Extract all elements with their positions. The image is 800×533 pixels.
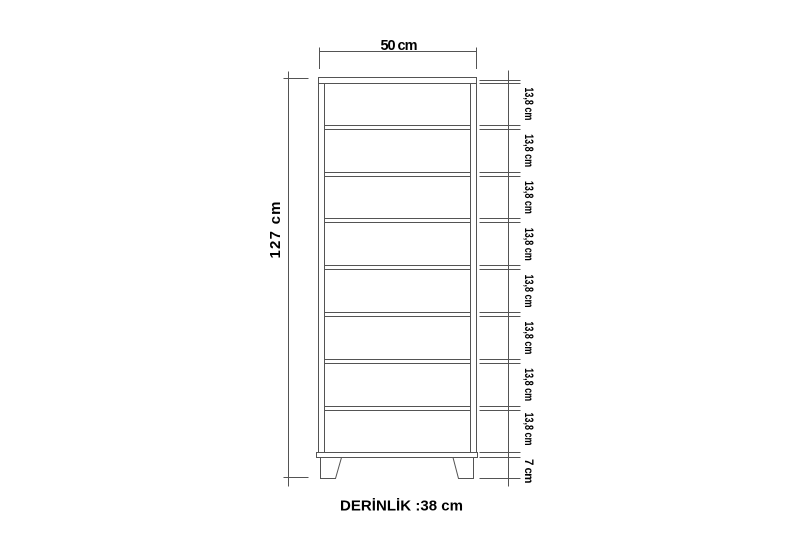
svg-text:13,8 cm: 13,8 cm bbox=[522, 413, 534, 446]
svg-text:127 cm: 127 cm bbox=[267, 202, 284, 259]
svg-text:7 cm: 7 cm bbox=[522, 459, 534, 484]
svg-text:13,8 cm: 13,8 cm bbox=[522, 181, 534, 214]
svg-text:DERİNLİK :38 cm: DERİNLİK :38 cm bbox=[340, 498, 463, 515]
svg-text:13,8 cm: 13,8 cm bbox=[522, 134, 534, 167]
svg-text:13,8 cm: 13,8 cm bbox=[522, 368, 534, 401]
svg-text:13,8 cm: 13,8 cm bbox=[522, 228, 534, 261]
svg-text:50 cm: 50 cm bbox=[381, 38, 418, 54]
svg-text:13,8 cm: 13,8 cm bbox=[522, 321, 534, 354]
svg-text:13,8 cm: 13,8 cm bbox=[522, 275, 534, 308]
svg-text:13,8 cm: 13,8 cm bbox=[522, 87, 534, 120]
